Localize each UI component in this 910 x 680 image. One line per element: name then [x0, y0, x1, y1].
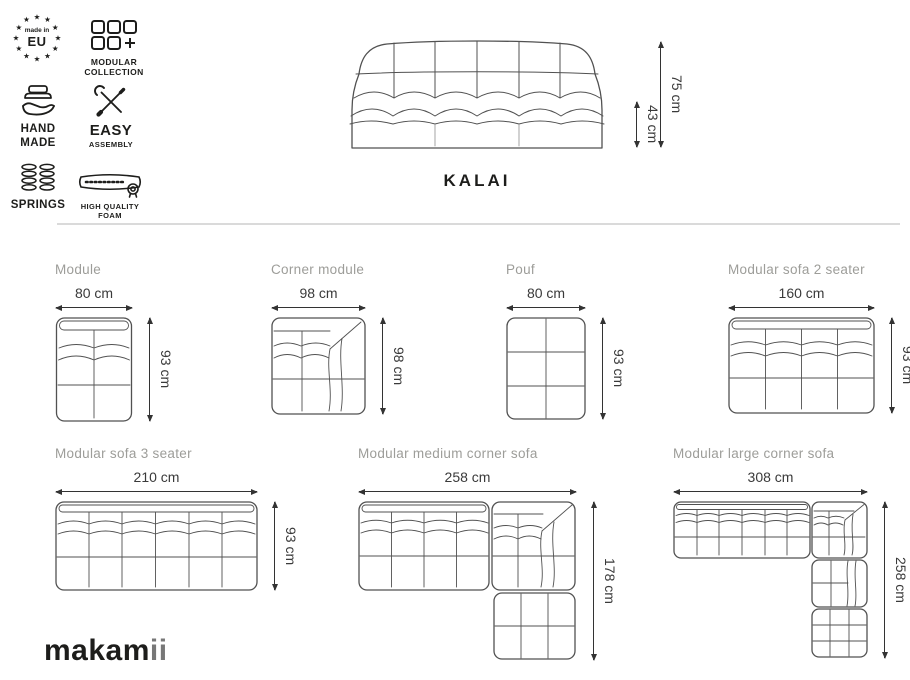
foam-icon [77, 170, 143, 198]
height-arrow-icon [379, 317, 386, 415]
arrow-line [884, 502, 885, 658]
arrow-line [674, 491, 867, 492]
height-dimension: 93 cm [271, 501, 299, 591]
diagram-card-module: Module 80 cm 93 cm [55, 262, 174, 422]
width-arrow-icon [55, 304, 133, 311]
modular-grid-icon [91, 20, 137, 50]
height-value: 93 cm [900, 346, 910, 384]
arrow-line [359, 491, 576, 492]
kalai-spec-sheet: ★ ★ ★ ★ ★ ★ ★ ★ ★ ★ ★ ★ made in EU [0, 0, 910, 680]
large-corner-sofa-top-view-drawing [673, 501, 868, 659]
height-value: 93 cm [283, 527, 299, 565]
hand-made-icon [19, 84, 57, 118]
pouf-top-view-drawing [506, 317, 586, 420]
width-arrow-icon [728, 304, 875, 311]
springs-badge: SPRINGS [12, 163, 64, 213]
height-dimension: 93 cm [599, 317, 627, 420]
diagram-title: Pouf [506, 262, 627, 277]
springs-label: SPRINGS [11, 199, 66, 213]
arrow-line [149, 318, 150, 421]
height-dimension: 93 cm [146, 317, 174, 422]
height-arrow-icon [146, 317, 153, 422]
diagram-title: Modular sofa 2 seater [728, 262, 910, 277]
width-arrow-icon [358, 488, 577, 495]
arrow-line [660, 42, 661, 147]
width-value: 210 cm [55, 469, 258, 485]
diagram-title: Corner module [271, 262, 407, 277]
made-in-eu-badge: ★ ★ ★ ★ ★ ★ ★ ★ ★ ★ ★ ★ made in EU [10, 11, 64, 65]
makamii-logo: makamii [44, 634, 168, 668]
foam-label: FOAM [81, 211, 140, 220]
diagram-title: Modular sofa 3 seater [55, 446, 299, 461]
diagram-card-medium-corner-sofa: Modular medium corner sofa 258 cm [358, 446, 618, 661]
width-value: 308 cm [673, 469, 868, 485]
width-value: 80 cm [55, 285, 133, 301]
width-dimension: 98 cm [271, 285, 366, 311]
logo-main-text: makam [44, 634, 150, 667]
arrow-line [507, 307, 585, 308]
sofa-front-view-drawing [343, 32, 611, 150]
height-value: 98 cm [391, 347, 407, 385]
width-value: 160 cm [728, 285, 875, 301]
height-arrow-icon [590, 501, 597, 661]
arrow-line [274, 502, 275, 590]
easy-assembly-badge: EASY ASSEMBLY [78, 85, 144, 149]
diagram-title: Module [55, 262, 174, 277]
diagram-title: Modular medium corner sofa [358, 446, 618, 461]
hand-made-badge: HAND MADE [12, 84, 64, 151]
height-dimension: 93 cm [888, 317, 910, 414]
height-dimension: 258 cm [881, 501, 909, 659]
diagram-card-pouf: Pouf 80 cm 93 cm [506, 262, 627, 420]
height-dimension: 98 cm [379, 317, 407, 415]
modular-collection-badge: MODULAR COLLECTION [74, 20, 154, 77]
width-value: 258 cm [358, 469, 577, 485]
total-height-value: 75 cm [669, 75, 685, 113]
width-dimension: 258 cm [358, 469, 577, 495]
height-dimension: 178 cm [590, 501, 618, 661]
diagram-card-sofa-3-seater: Modular sofa 3 seater 210 cm 93 cm [55, 446, 299, 591]
medium-corner-sofa-top-view-drawing [358, 501, 577, 661]
made-in-label: made in [25, 27, 50, 34]
collection-label: COLLECTION [84, 67, 143, 77]
width-arrow-icon [55, 488, 258, 495]
height-value: 93 cm [158, 350, 174, 388]
sofa-3-seater-top-view-drawing [55, 501, 258, 591]
hand-label: HAND [20, 123, 55, 137]
diagram-card-sofa-2-seater: Modular sofa 2 seater 160 cm 93 cm [728, 262, 910, 414]
arrow-line [272, 307, 365, 308]
easy-label: EASY [90, 122, 132, 140]
eu-label: EU [27, 34, 46, 49]
arrow-line [593, 502, 594, 660]
height-value: 93 cm [611, 349, 627, 387]
arrow-line [382, 318, 383, 414]
width-value: 80 cm [506, 285, 586, 301]
width-arrow-icon [673, 488, 868, 495]
arrow-line [602, 318, 603, 419]
modular-label: MODULAR [84, 57, 143, 67]
height-value: 258 cm [893, 557, 909, 603]
total-height-dimension: 75 cm [657, 41, 685, 148]
height-value: 178 cm [602, 558, 618, 604]
width-dimension: 160 cm [728, 285, 875, 311]
section-divider [57, 223, 900, 225]
product-name: KALAI [343, 171, 611, 191]
width-dimension: 80 cm [55, 285, 133, 311]
sofa-2-seater-top-view-drawing [728, 317, 875, 414]
arrow-line [56, 307, 132, 308]
arrow-line [636, 102, 637, 147]
made-label: MADE [20, 137, 55, 151]
high-quality-label: HIGH QUALITY [81, 202, 140, 211]
height-arrow-icon [881, 501, 888, 659]
height-arrow-icon [888, 317, 895, 414]
tools-icon [94, 85, 128, 118]
width-arrow-icon [506, 304, 586, 311]
arrow-line [891, 318, 892, 413]
logo-accent-text: ii [150, 634, 168, 667]
arrow-line [729, 307, 874, 308]
diagram-title: Modular large corner sofa [673, 446, 909, 461]
height-arrow-icon [271, 501, 278, 591]
springs-icon [19, 163, 57, 193]
width-value: 98 cm [271, 285, 366, 301]
diagram-card-corner-module: Corner module 98 cm [271, 262, 407, 415]
height-arrow-icon [599, 317, 606, 420]
module-top-view-drawing [55, 317, 133, 422]
high-quality-foam-badge: HIGH QUALITY FOAM [70, 170, 150, 220]
corner-module-top-view-drawing [271, 317, 366, 415]
diagram-card-large-corner-sofa: Modular large corner sofa 308 cm [673, 446, 909, 659]
seat-height-arrow-icon [633, 101, 640, 148]
arrow-line [56, 491, 257, 492]
width-dimension: 80 cm [506, 285, 586, 311]
assembly-label: ASSEMBLY [89, 140, 133, 149]
width-dimension: 308 cm [673, 469, 868, 495]
total-height-arrow-icon [657, 41, 664, 148]
width-arrow-icon [271, 304, 366, 311]
width-dimension: 210 cm [55, 469, 258, 495]
